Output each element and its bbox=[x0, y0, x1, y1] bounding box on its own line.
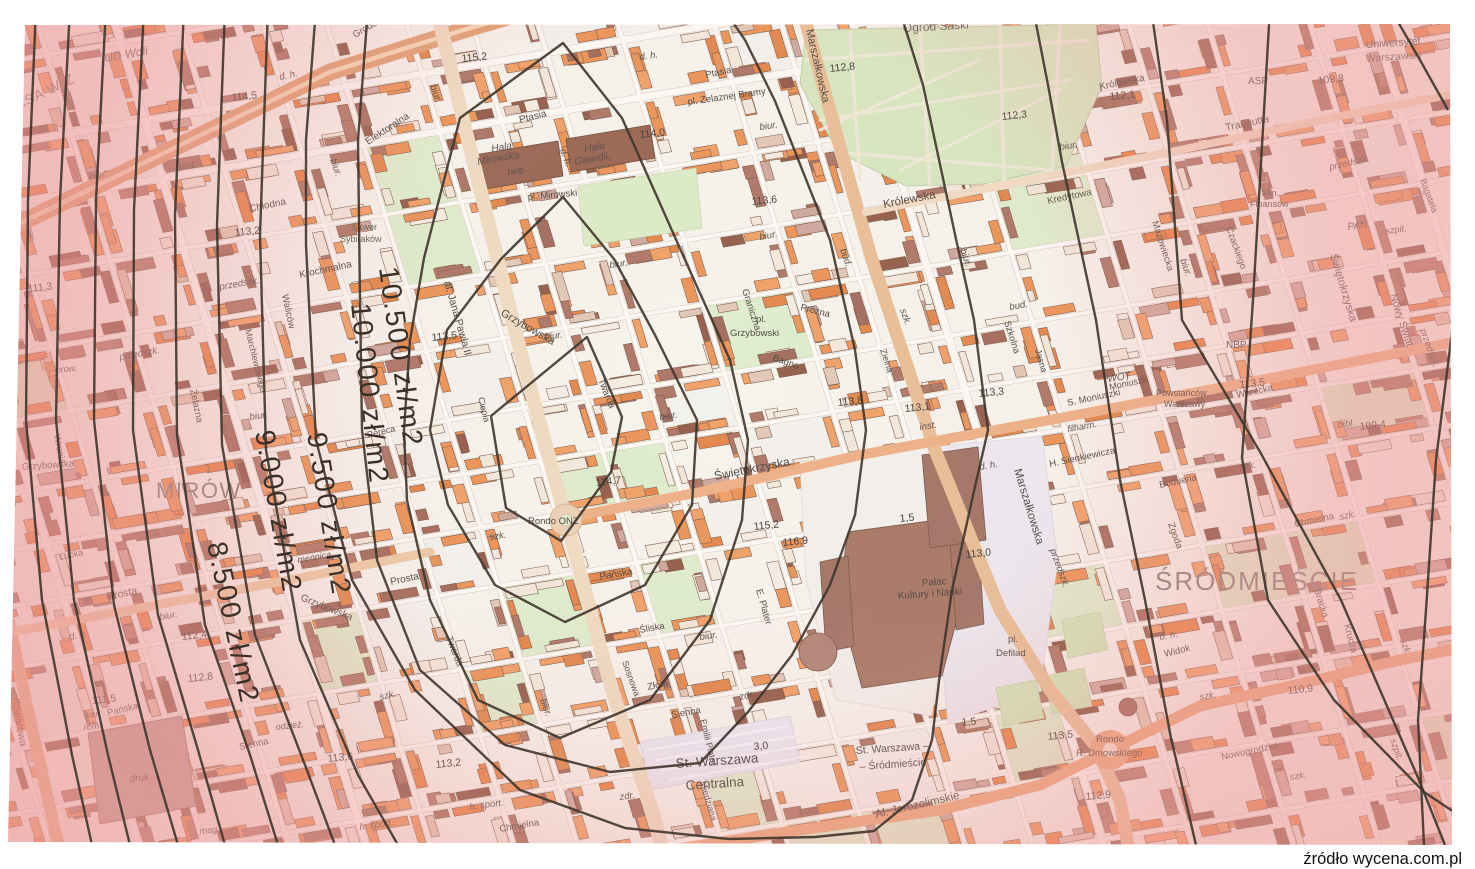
svg-text:źródło wycena.com.pl: źródło wycena.com.pl bbox=[1303, 850, 1462, 868]
